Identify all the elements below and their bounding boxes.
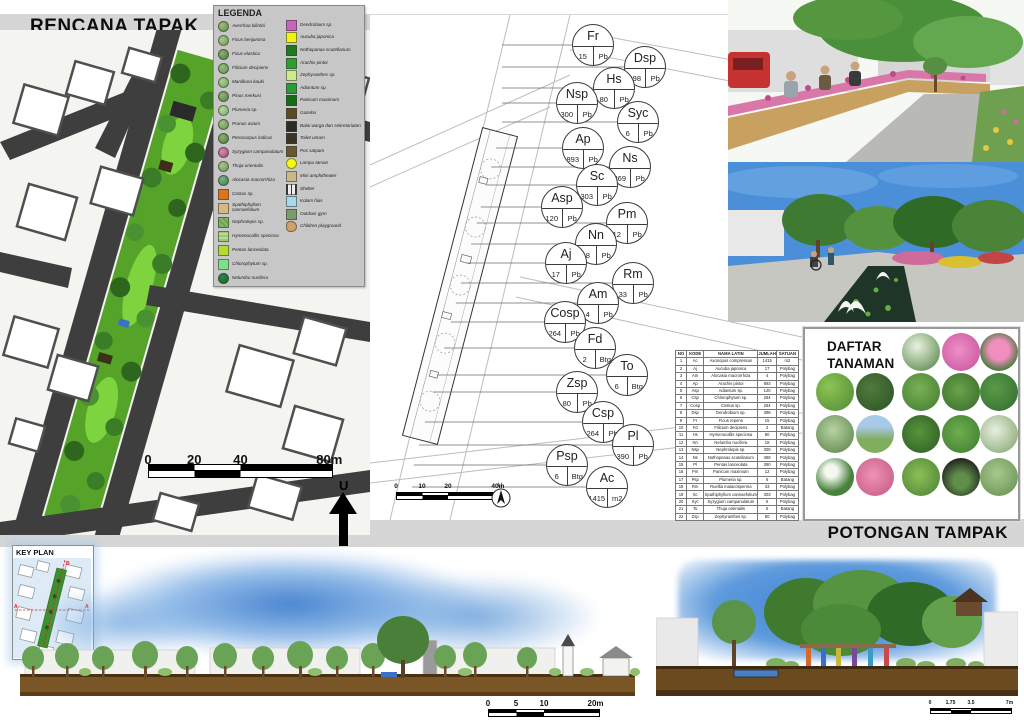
legend-item-label: Manilkara kauki [232, 80, 264, 85]
feature-symbol-icon [286, 171, 297, 182]
legend-item-label: Balai warga dan sekretariatan [300, 124, 361, 129]
cell-no: 21 [676, 506, 687, 513]
table-header-cell: NAMA LATIN [704, 351, 758, 358]
cell-no: 22 [676, 513, 687, 520]
table-row: 8 Dsp Dendrobium sp. 398 Polybag [676, 410, 799, 417]
plant-photo [856, 415, 894, 453]
legend-item: Spathiphyllum cannaefolium [218, 201, 284, 215]
table-row: 7 Cosp Costus sp. 264 Polybag [676, 402, 799, 409]
table-row: 1 Ac Axonopus compressus 1415 m2 [676, 358, 799, 365]
cell-kode: Sc [687, 491, 704, 498]
plant-photo [816, 458, 854, 496]
legend-item-label: Dendrobium sp. [300, 23, 332, 28]
table-row: 18 Rm Ruellia malacosperma 33 Polybag [676, 484, 799, 491]
cell-jumlah: 80 [758, 432, 776, 439]
cell-jumlah: 1415 [758, 358, 776, 365]
plant-symbol-icon [218, 217, 229, 228]
plant-quantity-label: Pl 390 Pb [612, 424, 654, 466]
legend-item: Nephrolepis sp. [218, 215, 284, 229]
legend-item-label: Outdoor gym [300, 212, 327, 217]
cell-satuan: Polybag [776, 380, 798, 387]
scale-bar-segment [396, 496, 500, 500]
plant-quantity-label: Ac 1415 m2 [586, 466, 628, 508]
legend-item: Outdoor gym [286, 208, 362, 221]
legend-item: Thuja orientalis [218, 159, 284, 173]
cell-nama-latin: Nephrolepis sp. [704, 447, 758, 454]
legend-features-column: Dendrobium sp. Aucuba japonica Nothopana… [286, 19, 362, 233]
plant-list-panel: DAFTAR TANAMAN [803, 327, 1020, 521]
legend-item: Children playground [286, 221, 362, 234]
table-row: 22 Zsp Zephyranthes sp. 80 Polybag [676, 513, 799, 520]
legend-item-label: Ficus benjamina [232, 38, 265, 43]
legend-item-label: Plumeria sp. [232, 108, 258, 113]
plant-symbol-icon [218, 77, 229, 88]
legend-item-label: Prunus avium [232, 122, 260, 127]
feature-symbol-icon [286, 20, 297, 31]
cell-nama-latin: Adiantum sp. [704, 387, 758, 394]
cell-nama-latin: Thuja orientalis [704, 506, 758, 513]
legend-item-label: Aucuba japonica [300, 35, 334, 40]
plant-photo [942, 458, 980, 496]
table-row: 16 Pm Panicum maximum 12 Polybag [676, 469, 799, 476]
presentation-board: RENCANA TAPAK RENCANA PENANAMAN POTONGAN… [0, 0, 1024, 724]
cell-nama-latin: Pentas lanceolata [704, 461, 758, 468]
legend-item: Adiantum sp. [286, 82, 362, 95]
legend-item-label: Thuja orientalis [232, 164, 263, 169]
plant-symbol-icon [218, 35, 229, 46]
plant-quantity-label: Aj 17 Pb [545, 242, 587, 284]
cell-kode: Asp [687, 387, 704, 394]
feature-symbol-icon [286, 70, 297, 81]
plant-photo [942, 415, 980, 453]
cell-nama-latin: Dendrobium sp. [704, 410, 758, 417]
table-row: 10 Fd Filicium decipiens 2 Batang [676, 424, 799, 431]
table-row: 13 Nsp Nephrolepis sp. 300 Polybag [676, 447, 799, 454]
feature-symbol-icon [286, 58, 297, 69]
cell-satuan: Polybag [776, 484, 798, 491]
cell-jumlah: 303 [758, 491, 776, 498]
table-row: 11 Hs Hymenocallis speciosa 80 Polybag [676, 432, 799, 439]
cell-satuan: Polybag [776, 513, 798, 520]
scale-bar-segment [930, 711, 1012, 714]
table-row: 9 Fr Ficus repens 15 Polybag [676, 417, 799, 424]
section-a-scale-bar: 051020m [488, 699, 600, 717]
scale-tick-label: 0 [929, 700, 932, 706]
plant-photo [980, 458, 1018, 496]
scale-tick-label: 0 [144, 452, 151, 467]
cell-satuan: Polybag [776, 461, 798, 468]
cell-satuan: Polybag [776, 432, 798, 439]
plant-symbol-icon [218, 231, 229, 242]
legend-item-label: Ficus elastica [232, 52, 260, 57]
cell-no: 5 [676, 387, 687, 394]
cell-nama-latin: Plumeria sp. [704, 476, 758, 483]
cell-satuan: Polybag [776, 454, 798, 461]
section-b-scale-labels: 01.753.57m [930, 700, 1012, 708]
legend-item-label: Costus sp. [232, 192, 254, 197]
cell-jumlah: 17 [758, 365, 776, 372]
cell-satuan: Batang [776, 424, 798, 431]
legend-item-label: Panicum maximum [300, 98, 339, 103]
feature-symbol-icon [286, 32, 297, 43]
cell-no: 4 [676, 380, 687, 387]
legend-item: Dendrobium sp. [286, 19, 362, 32]
cell-no: 17 [676, 476, 687, 483]
plant-symbol-icon [218, 189, 229, 200]
scale-tick-label: 3.5 [968, 700, 975, 706]
feature-symbol-icon [286, 158, 297, 169]
legend-item-label: Adiantum sp. [300, 86, 327, 91]
legend-item-label: Arachis pintoi [300, 61, 328, 66]
legend-item-label: Children playground [300, 224, 341, 229]
scale-tick-label: 80m [316, 452, 342, 467]
cell-satuan: Polybag [776, 498, 798, 505]
table-row: 21 To Thuja orientalis 6 Batang [676, 506, 799, 513]
cell-kode: Zsp [687, 513, 704, 520]
plant-quantity-label: Sc 303 Pb [576, 164, 618, 206]
cell-kode: Fd [687, 424, 704, 431]
cell-kode: Pm [687, 469, 704, 476]
legend-plants-column: Averrhoa bilimbi Ficus benjamina Ficus e… [218, 19, 284, 285]
cell-kode: Nn [687, 439, 704, 446]
cell-nama-latin: Nothopanax scutellarium [704, 454, 758, 461]
feature-symbol-icon [286, 146, 297, 157]
cell-satuan: Polybag [776, 417, 798, 424]
cell-satuan: Polybag [776, 402, 798, 409]
legend-item-label: Chlorophytum sp. [232, 262, 268, 267]
scale-tick-label: 20 [187, 452, 201, 467]
table-header-row: NOKODENAMA LATINJUMLAHSATUAN [676, 351, 799, 358]
cell-kode: Hs [687, 432, 704, 439]
legend-item-label: Mini amphitheater [300, 174, 337, 179]
legend-item-label: Nelumbo nucifera [232, 276, 268, 281]
feature-symbol-icon [286, 45, 297, 56]
scale-tick-label: 0 [486, 699, 490, 708]
cell-kode: Am [687, 373, 704, 380]
cell-kode: Aj [687, 365, 704, 372]
plant-symbol-icon [218, 175, 229, 186]
plant-quantity-label: Psp 6 Btg [546, 444, 588, 486]
cell-no: 18 [676, 484, 687, 491]
legend-title: LEGENDA [218, 8, 262, 18]
table-row: 17 Psp Plumeria sp. 6 Batang [676, 476, 799, 483]
legend-item: Zephyranthes sp. [286, 69, 362, 82]
cell-satuan: Polybag [776, 491, 798, 498]
plant-quantity-label: Ap 893 Pb [562, 127, 604, 169]
legend-item-label: Nephrolepis sp. [232, 220, 264, 225]
cell-no: 7 [676, 402, 687, 409]
cell-no: 12 [676, 439, 687, 446]
cell-jumlah: 390 [758, 461, 776, 468]
cell-satuan: Polybag [776, 469, 798, 476]
tree-canopy [712, 570, 988, 668]
scale-tick-label: 1.75 [946, 700, 956, 706]
table-row: 3 Am Alocasia macrorrhiza 4 Polybag [676, 373, 799, 380]
legend-item: Alocasia macrorrhiza [218, 173, 284, 187]
cell-satuan: Polybag [776, 439, 798, 446]
cell-no: 3 [676, 373, 687, 380]
legend-item-label: Pentas lanceolata [232, 248, 269, 253]
table-row: 20 Syc Syzygium campanulatum 6 Polybag [676, 498, 799, 505]
legend-item: Pos satpam [286, 145, 362, 158]
section-elevation-cross [656, 560, 1018, 700]
legend-item: Averrhoa bilimbi [218, 19, 284, 33]
plant-symbol-icon [218, 21, 229, 32]
plant-photo [856, 373, 894, 411]
cell-no: 13 [676, 447, 687, 454]
cell-kode: Fr [687, 417, 704, 424]
scale-tick-label: 7m [1006, 700, 1013, 706]
plant-photo [816, 415, 854, 453]
cell-nama-latin: Ficus repens [704, 417, 758, 424]
feature-symbol-icon [286, 196, 297, 207]
cell-jumlah: 15 [758, 417, 776, 424]
plant-quantity-label: Syc 6 Pb [617, 101, 659, 143]
plant-quantity-table: NOKODENAMA LATINJUMLAHSATUAN 1 Ac Axonop… [675, 350, 799, 521]
plant-photo [980, 333, 1018, 371]
legend-item: Panicum maximum [286, 95, 362, 108]
legend-item-label: Hymenocallis speciosa [232, 234, 279, 239]
table-header-cell: NO [676, 351, 687, 358]
plant-photo [980, 415, 1018, 453]
plant-symbol-icon [218, 91, 229, 102]
cell-satuan: Polybag [776, 447, 798, 454]
cell-no: 11 [676, 432, 687, 439]
plant-symbol-icon [218, 133, 229, 144]
cell-kode: Nsp [687, 447, 704, 454]
render-photo-seating-area [728, 0, 1024, 162]
plant-symbol-icon [218, 119, 229, 130]
plant-quantity-label: Fr 15 Pb [572, 24, 614, 66]
legend-item: Arachis pintoi [286, 57, 362, 70]
legend-item: Ficus elastica [218, 47, 284, 61]
render-photo-park-pond [728, 162, 1024, 322]
feature-symbol-icon [286, 221, 297, 232]
plant-photo [942, 373, 980, 411]
cell-satuan: Polybag [776, 365, 798, 372]
table-row: 5 Asp Adiantum sp. 120 Polybag [676, 387, 799, 394]
plant-photo [902, 415, 940, 453]
cell-no: 6 [676, 395, 687, 402]
table-body: 1 Ac Axonopus compressus 1415 m2 2 Aj Au… [676, 358, 799, 521]
cell-nama-latin: Hymenocallis speciosa [704, 432, 758, 439]
scale-tick-label: 40 [233, 452, 247, 467]
legend-panel: LEGENDA Averrhoa bilimbi Ficus benjamina… [213, 5, 365, 287]
table-row: 19 Sc Spathiphyllum cannaefolium 303 Pol… [676, 491, 799, 498]
plant-list-title: DAFTAR TANAMAN [827, 339, 894, 373]
plant-quantity-label: Nsp 300 Pb [556, 82, 598, 124]
table-header-cell: JUMLAH [758, 351, 776, 358]
legend-item: Ficus benjamina [218, 33, 284, 47]
legend-item: Prunus avium [218, 117, 284, 131]
cell-jumlah: 4 [758, 373, 776, 380]
plant-symbol-icon [218, 147, 229, 158]
north-compass-planting: U [488, 480, 514, 510]
section-a-scale-labels: 051020m [488, 699, 600, 709]
legend-item-label: Alocasia macrorrhiza [232, 178, 275, 183]
cell-jumlah: 18 [758, 439, 776, 446]
legend-item-label: Filicium decipiens [232, 66, 268, 71]
cell-kode: Rm [687, 484, 704, 491]
cell-no: 20 [676, 498, 687, 505]
legend-item: Plumeria sp. [218, 103, 284, 117]
legend-item: Pinus merkusi [218, 89, 284, 103]
scale-bar-segment [148, 471, 333, 478]
legend-item: Balai warga dan sekretariatan [286, 120, 362, 133]
north-label-planting: U [498, 483, 502, 489]
cell-satuan: Polybag [776, 387, 798, 394]
plant-symbol-icon [218, 245, 229, 256]
scale-tick-label: 20m [588, 699, 604, 708]
cell-kode: Pl [687, 461, 704, 468]
cell-kode: Csp [687, 395, 704, 402]
legend-item-label: Shelter [300, 187, 315, 192]
table-header-cell: KODE [687, 351, 704, 358]
cell-no: 1 [676, 358, 687, 365]
cell-jumlah: 300 [758, 447, 776, 454]
legend-item-label: Lampu taman [300, 161, 328, 166]
table-row: 4 Ap Arachis pintoi 893 Polybag [676, 380, 799, 387]
legend-item: Nothopanax scutellarium [286, 44, 362, 57]
cell-nama-latin: Filicium decipiens [704, 424, 758, 431]
plant-photo [980, 373, 1018, 411]
legend-item-label: Pterocarpus indicus [232, 136, 272, 141]
legend-item-label: Averrhoa bilimbi [232, 24, 265, 29]
cell-kode: Ns [687, 454, 704, 461]
cell-jumlah: 264 [758, 395, 776, 402]
plant-symbol-icon [218, 49, 229, 60]
cell-nama-latin: Zephyranthes sp. [704, 513, 758, 520]
feature-symbol-icon [286, 133, 297, 144]
legend-item-label: Kolam hias [300, 199, 323, 204]
cell-jumlah: 264 [758, 402, 776, 409]
cell-kode: To [687, 506, 704, 513]
legend-item: Aucuba japonica [286, 32, 362, 45]
legend-item-label: Syzygium campanulatum [232, 150, 283, 155]
plant-quantity-label: To 6 Btg [606, 354, 648, 396]
north-arrow-site: U [318, 478, 368, 548]
feature-symbol-icon [286, 121, 297, 132]
feature-symbol-icon [286, 209, 297, 220]
scale-bar-segment [488, 713, 600, 717]
cell-no: 19 [676, 491, 687, 498]
table-row: 15 Pl Pentas lanceolata 390 Polybag [676, 461, 799, 468]
cell-jumlah: 893 [758, 380, 776, 387]
cell-jumlah: 369 [758, 454, 776, 461]
cell-jumlah: 33 [758, 484, 776, 491]
section-elevation-long [15, 548, 645, 700]
cell-nama-latin: Aucuba japonica [704, 365, 758, 372]
cell-kode: Syc [687, 498, 704, 505]
legend-item-label: Nothopanax scutellarium [300, 48, 351, 53]
plant-quantity-label: Asp 120 Pb [541, 186, 583, 228]
cell-kode: Ap [687, 380, 704, 387]
cell-satuan: Polybag [776, 410, 798, 417]
legend-item: Syzygium campanulatum [218, 145, 284, 159]
cell-no: 16 [676, 469, 687, 476]
legend-item: Kolam hias [286, 195, 362, 208]
cell-kode: Psp [687, 476, 704, 483]
plant-photo [856, 458, 894, 496]
site-scale-labels: 0204080m [148, 452, 333, 464]
legend-item-label: Toilet umum [300, 136, 325, 141]
cell-jumlah: 12 [758, 469, 776, 476]
plant-symbol-icon [218, 259, 229, 270]
legend-item: Toilet umum [286, 132, 362, 145]
table-header-cell: SATUAN [776, 351, 798, 358]
legend-item: Shelter [286, 183, 362, 196]
cell-jumlah: 80 [758, 513, 776, 520]
plant-symbol-icon [218, 273, 229, 284]
legend-item-label: Pos satpam [300, 149, 324, 154]
legend-item-label: Pinus merkusi [232, 94, 261, 99]
cell-satuan: Batang [776, 476, 798, 483]
feature-symbol-icon [286, 184, 297, 195]
legend-item-label: Gazebo [300, 111, 316, 116]
scale-tick-label: 10 [418, 483, 425, 490]
cell-jumlah: 6 [758, 476, 776, 483]
section-b-scale-bar: 01.753.57m [930, 700, 1012, 714]
legend-item: Chlorophytum sp. [218, 257, 284, 271]
table-row: 6 Csp Chlorophytum sp. 264 Polybag [676, 395, 799, 402]
cell-nama-latin: Arachis pintoi [704, 380, 758, 387]
cell-nama-latin: Nelumbo nucifera [704, 439, 758, 446]
cell-satuan: Batang [776, 506, 798, 513]
plant-symbol-icon [218, 203, 229, 214]
site-scale-bar: 0204080m [148, 452, 333, 478]
legend-item: Pentas lanceolata [218, 243, 284, 257]
north-label-site: U [339, 478, 348, 493]
cell-satuan: m2 [776, 358, 798, 365]
cell-kode: Cosp [687, 402, 704, 409]
sections-title: POTONGAN TAMPAK [828, 523, 1008, 543]
legend-item: Manilkara kauki [218, 75, 284, 89]
cell-nama-latin: Ruellia malacosperma [704, 484, 758, 491]
planting-scale-labels: 0102040m [396, 483, 500, 492]
cell-nama-latin: Spathiphyllum cannaefolium [704, 491, 758, 498]
cell-nama-latin: Chlorophytum sp. [704, 395, 758, 402]
legend-item: Nelumbo nucifera [218, 271, 284, 285]
cell-no: 2 [676, 365, 687, 372]
table-row: 14 Ns Nothopanax scutellarium 369 Polyba… [676, 454, 799, 461]
legend-item: Gazebo [286, 107, 362, 120]
plant-photo [942, 333, 980, 371]
cell-satuan: Polybag [776, 395, 798, 402]
cell-nama-latin: Costus sp. [704, 402, 758, 409]
scale-tick-label: 10 [540, 699, 549, 708]
legend-item: Hymenocallis speciosa [218, 229, 284, 243]
legend-item: Filicium decipiens [218, 61, 284, 75]
legend-item: Lampu taman [286, 158, 362, 171]
plant-photo [902, 333, 940, 371]
table-row: 12 Nn Nelumbo nucifera 18 Polybag [676, 439, 799, 446]
cell-jumlah: 2 [758, 424, 776, 431]
legend-item: Mini amphitheater [286, 170, 362, 183]
legend-item: Costus sp. [218, 187, 284, 201]
scale-tick-label: 0 [394, 483, 398, 490]
plant-symbol-icon [218, 161, 229, 172]
cell-jumlah: 120 [758, 387, 776, 394]
cell-jumlah: 398 [758, 410, 776, 417]
legend-item-label: Zephyranthes sp. [300, 73, 336, 78]
cell-nama-latin: Alocasia macrorrhiza [704, 373, 758, 380]
cell-no: 10 [676, 424, 687, 431]
plant-photo [816, 373, 854, 411]
plant-photo [902, 458, 940, 496]
cell-no: 8 [676, 410, 687, 417]
cell-kode: Dsp [687, 410, 704, 417]
feature-symbol-icon [286, 83, 297, 94]
